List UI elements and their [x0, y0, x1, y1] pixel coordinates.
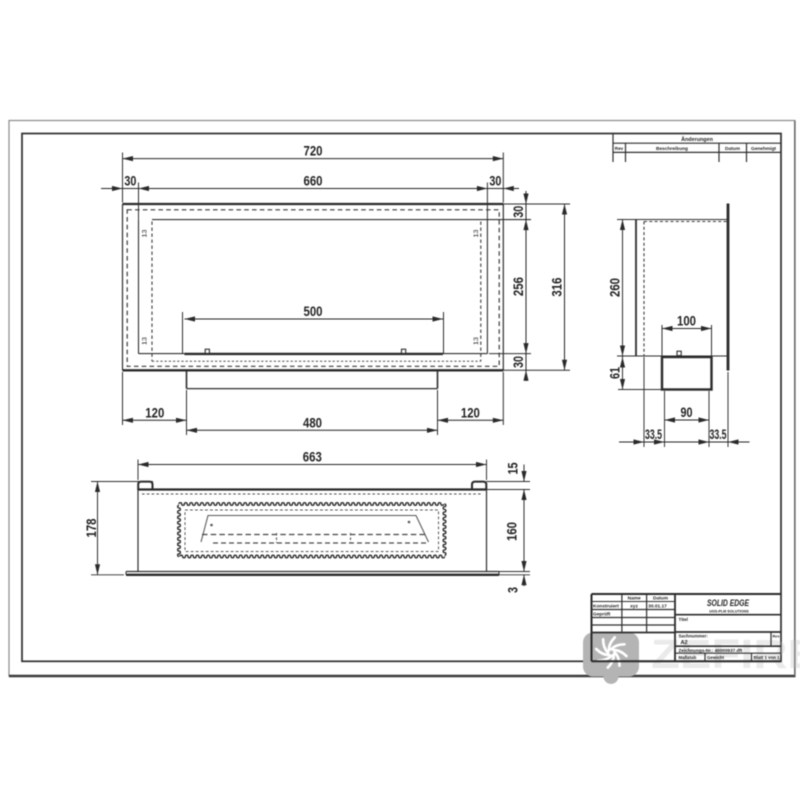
svg-text:Beschreibung: Beschreibung — [656, 146, 688, 152]
svg-text:500: 500 — [304, 303, 323, 319]
svg-text:SOLID EDGE: SOLID EDGE — [707, 598, 750, 608]
svg-text:xyz: xyz — [630, 605, 638, 610]
svg-text:30: 30 — [124, 173, 136, 189]
svg-text:Maßstab: Maßstab — [679, 655, 697, 660]
svg-text:178: 178 — [83, 518, 99, 537]
svg-text:13: 13 — [473, 337, 480, 345]
svg-text:Gewicht: Gewicht — [707, 655, 725, 660]
svg-text:100: 100 — [677, 313, 696, 329]
svg-text:Titel: Titel — [679, 617, 688, 622]
svg-text:316: 316 — [549, 277, 565, 296]
svg-text:480: 480 — [303, 414, 322, 430]
svg-text:Datum: Datum — [653, 596, 668, 602]
svg-text:61: 61 — [607, 367, 623, 379]
svg-text:13: 13 — [141, 229, 148, 237]
svg-text:33.5: 33.5 — [710, 426, 727, 442]
svg-text:Blatt 1 von 1: Blatt 1 von 1 — [754, 655, 781, 660]
svg-text:120: 120 — [461, 404, 480, 420]
svg-text:Sachnummer:: Sachnummer: — [679, 634, 709, 639]
svg-text:256: 256 — [510, 277, 526, 296]
svg-text:30.01.17: 30.01.17 — [648, 604, 667, 610]
svg-text:Rev: Rev — [773, 635, 781, 639]
svg-text:720: 720 — [304, 143, 323, 159]
svg-text:3: 3 — [505, 587, 521, 593]
svg-text:663: 663 — [303, 449, 322, 465]
svg-text:Zeichnungs-Nr.: 40000937.dft: Zeichnungs-Nr.: 40000937.dft — [679, 648, 743, 653]
svg-text:260: 260 — [607, 278, 623, 297]
svg-text:30: 30 — [510, 206, 526, 218]
svg-text:120: 120 — [145, 404, 164, 420]
svg-text:UGS-PLM SOLUTIONS: UGS-PLM SOLUTIONS — [709, 610, 749, 614]
svg-text:Genehmigt: Genehmigt — [751, 146, 776, 152]
svg-text:33.5: 33.5 — [645, 426, 662, 442]
svg-text:Name: Name — [628, 596, 641, 602]
svg-text:Geprüft: Geprüft — [593, 612, 611, 618]
svg-text:30: 30 — [489, 173, 501, 189]
svg-text:Rev: Rev — [615, 146, 624, 151]
svg-text:13: 13 — [473, 229, 480, 237]
svg-text:90: 90 — [681, 404, 693, 420]
svg-text:660: 660 — [304, 173, 323, 189]
svg-text:13: 13 — [141, 337, 148, 345]
svg-text:Änderungen: Änderungen — [681, 136, 713, 143]
svg-text:160: 160 — [504, 522, 520, 541]
svg-text:Konstruiert: Konstruiert — [593, 604, 619, 610]
svg-text:30: 30 — [510, 356, 526, 368]
svg-text:A2: A2 — [681, 640, 688, 646]
svg-text:15: 15 — [505, 462, 521, 474]
svg-text:Datum: Datum — [725, 146, 740, 152]
